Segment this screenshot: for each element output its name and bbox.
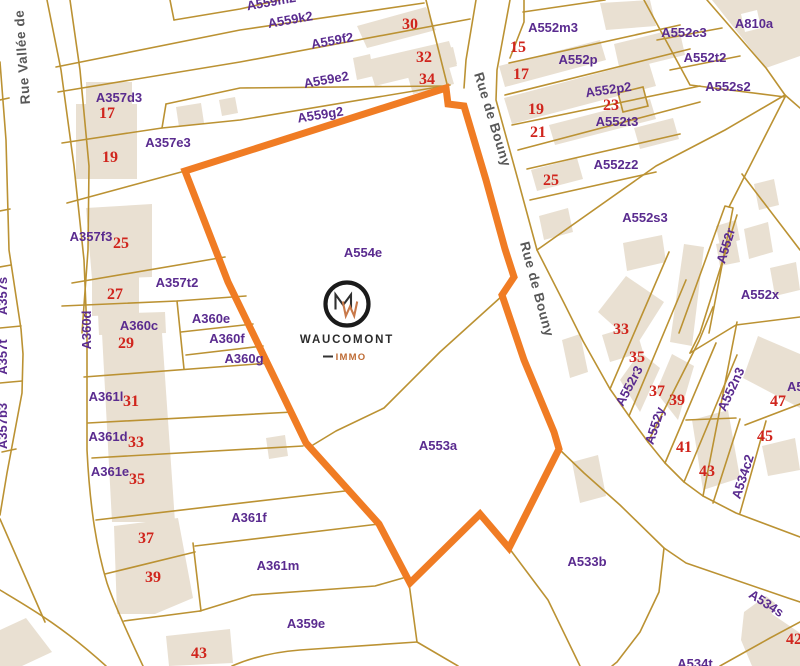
svg-text:37: 37 (138, 530, 154, 547)
svg-text:A552t2: A552t2 (684, 50, 727, 65)
svg-text:45: 45 (757, 428, 773, 445)
svg-text:A360c: A360c (120, 318, 158, 333)
svg-text:15: 15 (510, 39, 526, 56)
svg-text:25: 25 (113, 235, 129, 252)
svg-text:19: 19 (102, 149, 118, 166)
svg-text:27: 27 (107, 286, 123, 303)
svg-text:17: 17 (513, 66, 529, 83)
svg-text:31: 31 (123, 393, 139, 410)
svg-text:A361e: A361e (91, 464, 129, 479)
svg-text:A361l: A361l (89, 389, 124, 404)
svg-text:A552c3: A552c3 (661, 25, 707, 40)
svg-text:A357d3: A357d3 (96, 90, 142, 105)
svg-text:A810a: A810a (735, 16, 774, 31)
svg-text:30: 30 (402, 16, 418, 33)
svg-text:41: 41 (676, 439, 692, 456)
svg-text:17: 17 (99, 105, 115, 122)
svg-text:43: 43 (699, 463, 715, 480)
svg-text:47: 47 (770, 393, 786, 410)
svg-text:39: 39 (669, 392, 685, 409)
svg-text:23: 23 (603, 97, 619, 114)
svg-text:A553a: A553a (419, 438, 458, 453)
svg-text:A357t2: A357t2 (156, 275, 199, 290)
svg-text:43: 43 (191, 645, 207, 662)
svg-text:A361d: A361d (88, 429, 127, 444)
svg-text:A360g: A360g (224, 351, 263, 366)
svg-text:19: 19 (528, 101, 544, 118)
svg-text:21: 21 (530, 124, 546, 141)
svg-text:A360d: A360d (79, 310, 94, 349)
svg-text:37: 37 (649, 383, 665, 400)
svg-text:32: 32 (416, 49, 432, 66)
svg-text:33: 33 (128, 434, 144, 451)
svg-text:A552z2: A552z2 (594, 157, 639, 172)
svg-text:34: 34 (419, 71, 435, 88)
svg-text:39: 39 (145, 569, 161, 586)
svg-text:A357e3: A357e3 (145, 135, 191, 150)
svg-text:A552s3: A552s3 (622, 210, 668, 225)
svg-text:A361f: A361f (231, 510, 267, 525)
svg-text:A534t: A534t (677, 656, 713, 666)
svg-text:33: 33 (613, 321, 629, 338)
svg-text:A534c: A534c (787, 379, 800, 394)
svg-text:29: 29 (118, 335, 134, 352)
svg-text:A552x: A552x (741, 287, 780, 302)
svg-text:35: 35 (129, 471, 145, 488)
svg-text:A552m3: A552m3 (528, 20, 578, 35)
svg-text:A552p: A552p (558, 52, 597, 67)
svg-text:WAUCOMONT: WAUCOMONT (300, 334, 394, 346)
svg-text:IMMO: IMMO (336, 352, 367, 363)
svg-text:A357f3: A357f3 (70, 229, 113, 244)
svg-text:A361m: A361m (257, 558, 300, 573)
svg-text:A360e: A360e (192, 311, 230, 326)
svg-text:A357b3: A357b3 (0, 403, 10, 449)
svg-text:A359e: A359e (287, 616, 325, 631)
svg-text:42: 42 (786, 631, 800, 648)
svg-text:35: 35 (629, 349, 645, 366)
svg-text:A357t: A357t (0, 339, 10, 375)
svg-text:A554e: A554e (344, 245, 382, 260)
svg-text:A360f: A360f (209, 331, 245, 346)
svg-text:A533b: A533b (567, 554, 606, 569)
svg-text:A552s2: A552s2 (705, 79, 751, 94)
svg-text:A552t3: A552t3 (596, 114, 639, 129)
svg-text:25: 25 (543, 172, 559, 189)
svg-text:A357s: A357s (0, 277, 10, 315)
